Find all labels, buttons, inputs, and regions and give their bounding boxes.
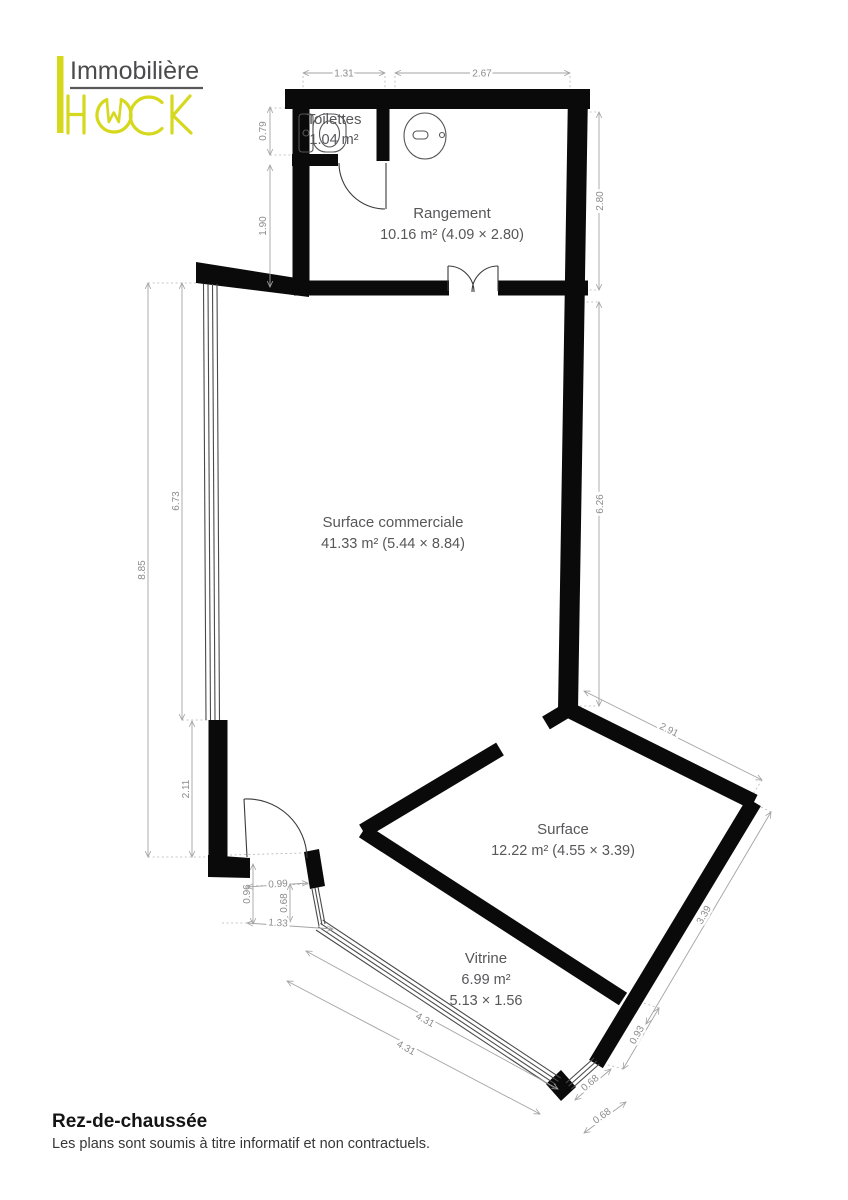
vitrine-glazing <box>316 920 561 1088</box>
svg-text:6.73: 6.73 <box>171 491 182 511</box>
dim-6-26: 6.26 <box>595 302 606 706</box>
room-label-surface-commerciale: Surface commerciale 41.33 m² (5.44 × 8.8… <box>321 514 465 552</box>
svg-text:Rangement: Rangement <box>413 205 491 222</box>
logo-letter-a-circle <box>97 100 131 132</box>
svg-text:Vitrine: Vitrine <box>465 950 507 967</box>
svg-text:2.80: 2.80 <box>595 191 606 211</box>
dim-3-39: 3.39 <box>646 812 771 1024</box>
dim-1-31: 1.31 <box>303 69 385 80</box>
storefront-window-left <box>204 284 220 720</box>
double-door-rangement <box>448 266 498 292</box>
wall-surface-nw <box>363 749 500 831</box>
wall-bottom-left-return <box>208 855 250 878</box>
doors <box>244 163 498 858</box>
svg-text:0.68: 0.68 <box>579 1073 601 1094</box>
room-label-vitrine: Vitrine 6.99 m² 5.13 × 1.56 <box>450 950 523 1009</box>
svg-text:6.99 m²: 6.99 m² <box>461 972 510 988</box>
dim-0-68-corner-b: 0.68 <box>584 1102 626 1133</box>
svg-text:1.31: 1.31 <box>334 69 354 80</box>
svg-text:41.33 m² (5.44 × 8.84): 41.33 m² (5.44 × 8.84) <box>321 536 465 552</box>
svg-text:0.79: 0.79 <box>258 121 269 141</box>
svg-text:Surface: Surface <box>537 821 589 838</box>
logo-letter-c <box>130 97 162 134</box>
logo-company-name: Immobilière <box>70 57 199 85</box>
wall-surface-ne <box>563 707 754 802</box>
windows <box>204 284 600 1089</box>
svg-text:6.26: 6.26 <box>595 494 606 514</box>
logo-letter-k <box>172 96 191 133</box>
floor-title: Rez-de-chaussée <box>52 1111 207 1132</box>
dim-6-73: 6.73 <box>171 283 182 720</box>
entry-door <box>244 799 307 858</box>
svg-text:4.31: 4.31 <box>414 1011 437 1030</box>
logo-house-icon <box>107 100 121 122</box>
svg-text:0.93: 0.93 <box>628 1024 647 1047</box>
dim-4-31-a: 4.31 <box>306 951 558 1089</box>
sink-icon <box>404 113 446 159</box>
room-label-surface: Surface 12.22 m² (4.55 × 3.39) <box>491 821 635 859</box>
dim-8-85: 8.85 <box>137 283 148 857</box>
floor-plan-page: Immobilière <box>0 0 848 1200</box>
svg-text:1.04 m²: 1.04 m² <box>309 132 358 148</box>
dim-2-80: 2.80 <box>595 112 606 290</box>
dim-2-11: 2.11 <box>181 721 192 857</box>
dim-2-67: 2.67 <box>395 69 570 80</box>
dim-0-68-corner-a: 0.68 <box>575 1069 611 1100</box>
logo: Immobilière <box>57 56 203 134</box>
svg-text:2.67: 2.67 <box>472 69 492 80</box>
room-label-toilettes: Toilettes 1.04 m² <box>306 111 361 148</box>
logo-hack-wordmark <box>68 96 191 134</box>
floor-plan-canvas: Immobilière <box>0 0 848 1200</box>
disclaimer-text: Les plans sont soumis à titre informatif… <box>52 1136 430 1152</box>
svg-text:1.90: 1.90 <box>258 216 269 236</box>
dim-1-90: 1.90 <box>258 165 270 287</box>
svg-text:8.85: 8.85 <box>137 560 148 580</box>
svg-text:2.11: 2.11 <box>181 779 192 798</box>
svg-text:Surface commerciale: Surface commerciale <box>323 514 464 531</box>
toilet-door <box>339 163 386 209</box>
footer: Rez-de-chaussée Les plans sont soumis à … <box>52 1111 430 1152</box>
wall-right <box>568 92 578 710</box>
svg-text:0.99: 0.99 <box>268 878 289 890</box>
svg-text:Toilettes: Toilettes <box>306 111 361 128</box>
wall-corner-stub <box>546 711 566 723</box>
svg-text:0.68: 0.68 <box>591 1106 614 1127</box>
svg-text:5.13 × 1.56: 5.13 × 1.56 <box>450 993 523 1009</box>
svg-text:0.68: 0.68 <box>279 893 290 913</box>
svg-text:1.33: 1.33 <box>268 917 289 929</box>
room-label-rangement: Rangement 10.16 m² (4.09 × 2.80) <box>380 205 524 243</box>
svg-text:12.22 m² (4.55 × 3.39): 12.22 m² (4.55 × 3.39) <box>491 843 635 859</box>
room-labels: Toilettes 1.04 m² Rangement 10.16 m² (4.… <box>306 111 634 1009</box>
logo-bar <box>57 56 64 133</box>
wall-surface-se <box>596 802 754 1064</box>
svg-text:10.16 m² (4.09 × 2.80): 10.16 m² (4.09 × 2.80) <box>380 227 524 243</box>
svg-text:4.31: 4.31 <box>395 1039 418 1058</box>
logo-letter-h <box>68 96 84 133</box>
dim-0-79: 0.79 <box>258 107 270 155</box>
